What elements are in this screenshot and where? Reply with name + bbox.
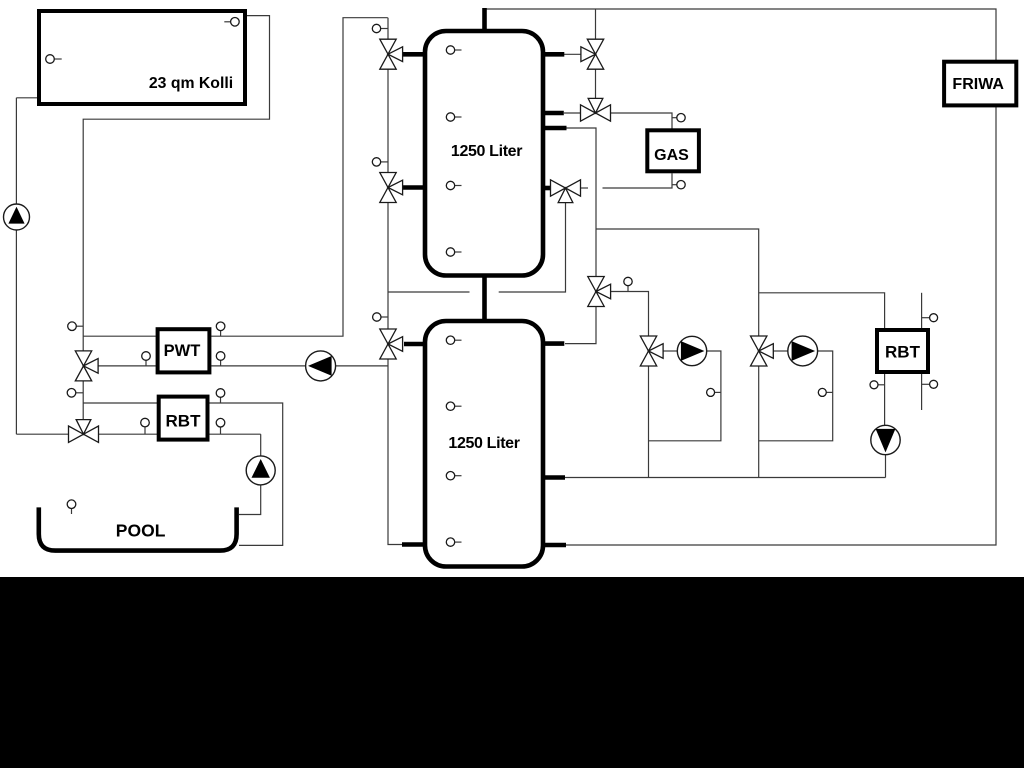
svg-text:1250 Liter: 1250 Liter [448, 435, 519, 452]
svg-text:FRIWA: FRIWA [952, 76, 1004, 93]
svg-text:23 qm Kolli: 23 qm Kolli [149, 75, 233, 92]
svg-text:PWT: PWT [164, 342, 201, 360]
svg-text:GAS: GAS [654, 147, 689, 164]
svg-text:RBT: RBT [166, 412, 202, 431]
svg-text:RBT: RBT [885, 343, 921, 362]
svg-text:1250 Liter: 1250 Liter [451, 143, 522, 160]
svg-text:POOL: POOL [116, 521, 166, 541]
